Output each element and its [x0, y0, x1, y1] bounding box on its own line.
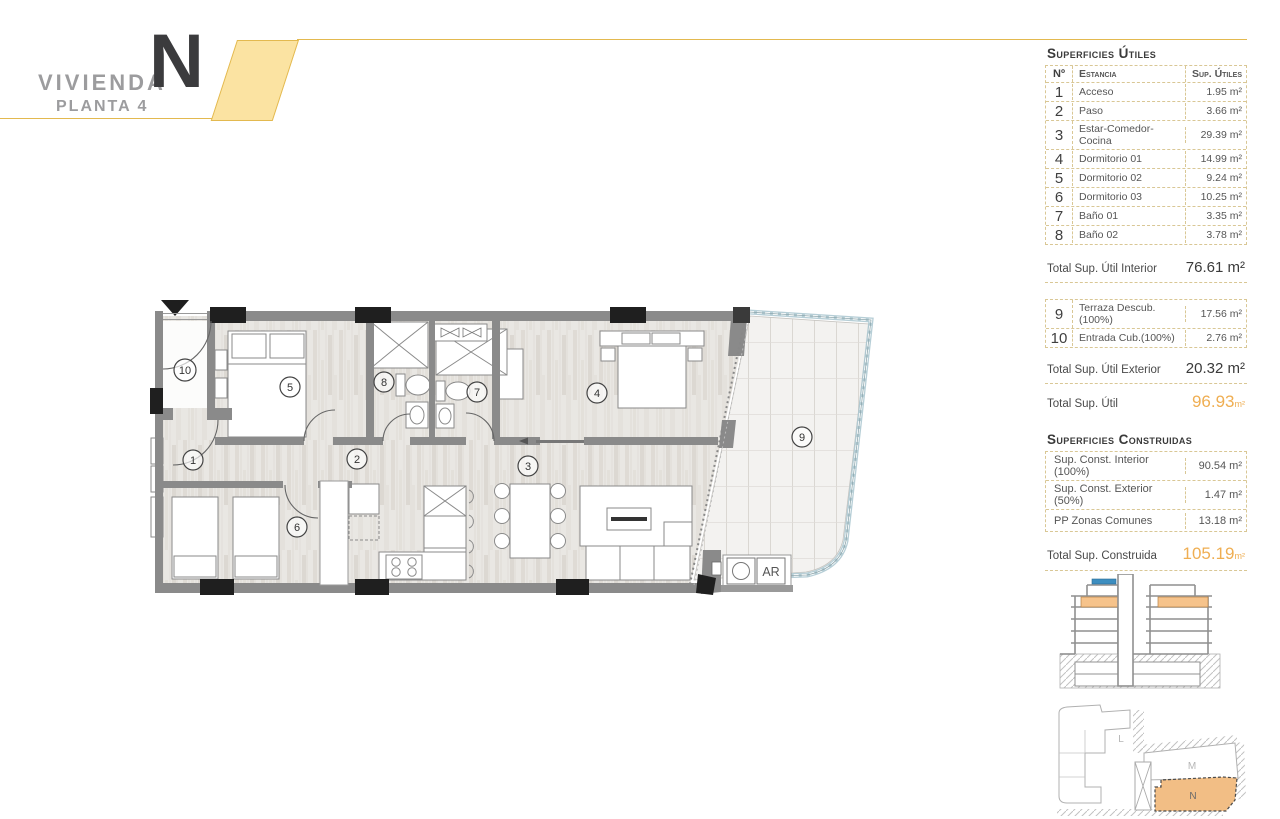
svg-text:6: 6 [294, 522, 300, 534]
site-label-l: L [1118, 734, 1124, 745]
total-interior-row: Total Sup. Útil Interior 76.61 m² [1045, 257, 1247, 283]
svg-text:9: 9 [799, 432, 805, 444]
utiles-heading: Superficies Útiles [1047, 46, 1247, 61]
svg-text:3: 3 [525, 461, 531, 473]
table-row: 10Entrada Cub.(100%)2.76 m² [1046, 328, 1246, 347]
table-row: 1Acceso1.95 m² [1046, 82, 1246, 101]
table-row: 8Baño 023.78 m² [1046, 225, 1246, 244]
total-exterior-row: Total Sup. Útil Exterior 20.32 m² [1045, 358, 1247, 384]
svg-text:5: 5 [287, 382, 293, 394]
svg-text:1: 1 [190, 455, 196, 467]
utiles-table: Nº Estancia Sup. Útiles 1Acceso1.95 m² 2… [1045, 65, 1247, 245]
area-panel: Superficies Útiles Nº Estancia Sup. Útil… [1045, 46, 1247, 819]
roof-element [1092, 579, 1116, 584]
building-section-diagram [1045, 574, 1247, 696]
svg-text:7: 7 [474, 387, 480, 399]
table-row: Sup. Const. Exterior (50%)1.47 m² [1046, 480, 1246, 509]
ar-label: AR [762, 565, 779, 579]
table-row: Sup. Const. Interior (100%)90.54 m² [1046, 452, 1246, 480]
core-shaft [1118, 574, 1133, 686]
exterior-table: 9Terraza Descub.(100%)17.56 m² 10Entrada… [1045, 299, 1247, 348]
total-util-row: Total Sup. Útil 96.93m² [1045, 390, 1247, 418]
svg-text:2: 2 [354, 454, 360, 466]
table-row: 7Baño 013.35 m² [1046, 206, 1246, 225]
site-label-n: N [1189, 791, 1196, 802]
table-row: 2Paso3.66 m² [1046, 101, 1246, 120]
construidas-heading: Superficies Construidas [1047, 432, 1247, 447]
utiles-table-header: Nº Estancia Sup. Útiles [1046, 66, 1246, 82]
table-row: PP Zonas Comunes13.18 m² [1046, 509, 1246, 531]
block-l-outline [1059, 705, 1130, 803]
floor-plan: AR [0, 0, 900, 775]
table-row: 5Dormitorio 029.24 m² [1046, 168, 1246, 187]
table-row: 6Dormitorio 0310.25 m² [1046, 187, 1246, 206]
table-row: 3Estar-Comedor-Cocina29.39 m² [1046, 120, 1246, 149]
total-construida-row: Total Sup. Construida 105.19m² [1045, 542, 1247, 571]
table-row: 4Dormitorio 0114.99 m² [1046, 149, 1246, 168]
svg-text:8: 8 [381, 377, 387, 389]
highlight-floor-left [1081, 597, 1118, 607]
utility-niche [712, 562, 721, 575]
table-row: 9Terraza Descub.(100%)17.56 m² [1046, 300, 1246, 328]
construidas-table: Sup. Const. Interior (100%)90.54 m² Sup.… [1045, 451, 1247, 532]
svg-text:4: 4 [594, 388, 600, 400]
highlight-floor-right [1158, 597, 1208, 607]
wall-chase [320, 481, 348, 585]
site-plan-diagram: L M N [1045, 699, 1247, 819]
site-label-m: M [1188, 761, 1196, 772]
svg-text:10: 10 [179, 365, 191, 377]
